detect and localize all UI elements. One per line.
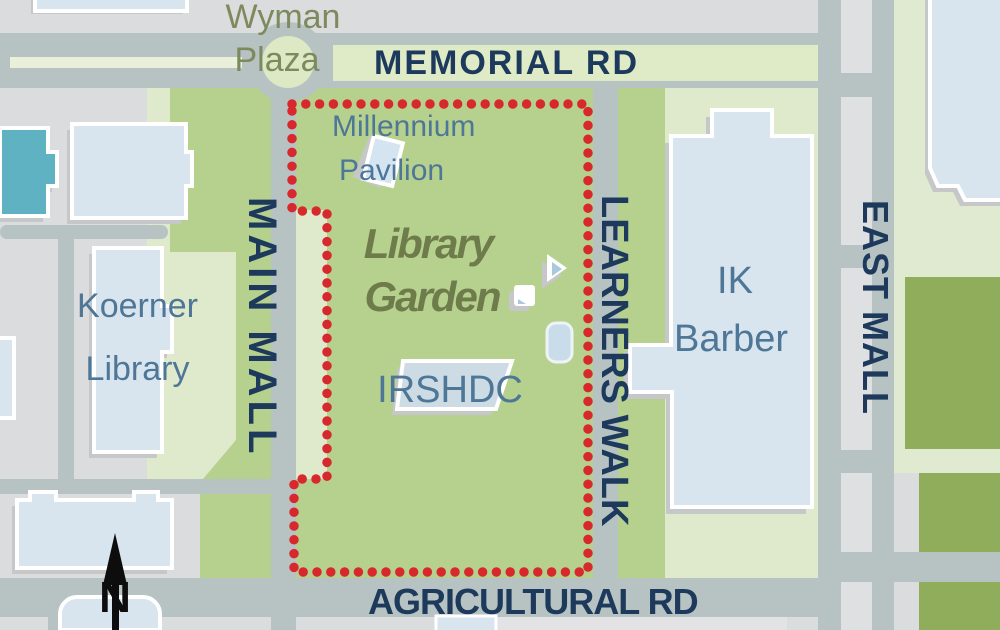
irshdc-label: IRSHDC <box>375 371 525 409</box>
west-side-road <box>0 225 168 239</box>
north-indicator-label: N <box>93 576 137 620</box>
ik-barber-label-line1: IK <box>695 262 775 300</box>
millennium-pavilion-label-line1: Millennium <box>332 112 475 142</box>
koerner-lawn-south <box>200 494 271 578</box>
garden-west-pale-strip <box>296 210 327 479</box>
east-mall-west-lane <box>818 0 841 630</box>
wyman-plaza-label-line2: Plaza <box>215 43 339 77</box>
ik-barber-label-line2: Barber <box>659 320 803 358</box>
east-mall-label: EAST MALL <box>857 200 893 415</box>
campus-map: MEMORIAL RD MAIN MALL LEARNERS WALK EAST… <box>0 0 1000 630</box>
library-garden-label-line1: Library <box>338 223 518 265</box>
koerner-library-label-line2: Library <box>55 352 220 386</box>
millennium-pavilion-label-line2: Pavilion <box>339 156 444 186</box>
memorial-west-strip <box>10 57 242 68</box>
east-mall-crossing-3 <box>841 450 872 473</box>
main-mall-label: MAIN MALL <box>242 197 282 457</box>
southwest-building <box>17 492 172 568</box>
agricultural-rd-label: AGRICULTURAL RD <box>368 584 683 620</box>
west-edge-building <box>0 338 14 418</box>
garden-structure-pool <box>547 323 572 362</box>
library-garden-label-line2: Garden <box>342 276 522 318</box>
olive-block-north <box>905 277 1000 449</box>
wyman-plaza-label-line1: Wyman <box>221 0 345 34</box>
teal-building <box>0 128 57 216</box>
agricultural-east-segment <box>841 552 1000 582</box>
northwest-building <box>72 124 192 218</box>
northeast-building <box>930 0 1000 200</box>
koerner-library-label-line1: Koerner <box>55 289 220 323</box>
east-gray-strip <box>894 473 919 630</box>
learners-walk-label: LEARNERS WALK <box>595 195 633 526</box>
memorial-rd-label: MEMORIAL RD <box>374 46 632 80</box>
north-edge-building <box>35 0 187 11</box>
olive-block-middle <box>919 473 1000 552</box>
olive-block-south <box>919 582 1000 630</box>
east-mall-crossing-1 <box>841 73 872 97</box>
